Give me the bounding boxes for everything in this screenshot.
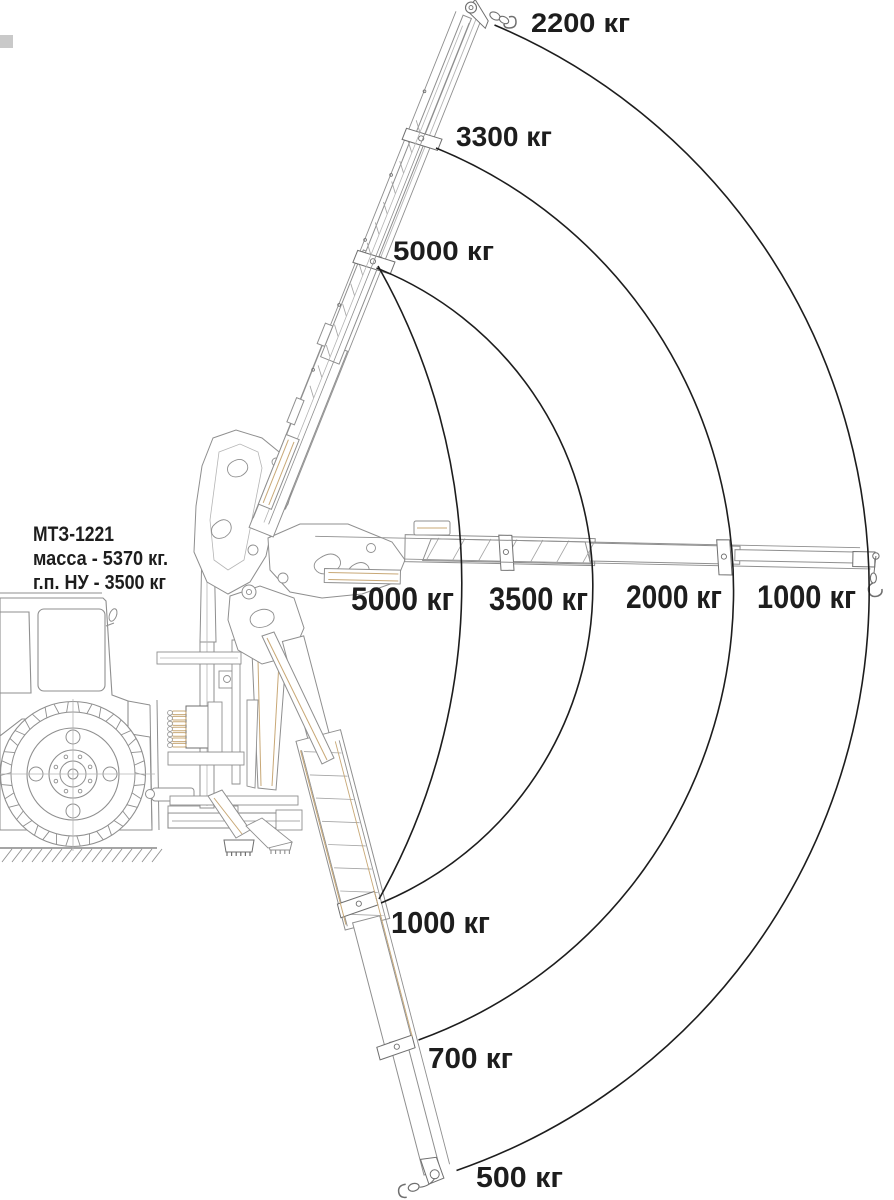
svg-text:5000 кг: 5000 кг — [393, 236, 494, 266]
svg-text:2000 кг: 2000 кг — [626, 579, 722, 615]
svg-text:г.п. НУ - 3500 кг: г.п. НУ - 3500 кг — [33, 572, 166, 594]
svg-text:700 кг: 700 кг — [428, 1043, 513, 1075]
svg-text:3300 кг: 3300 кг — [456, 121, 552, 152]
svg-text:5000 кг: 5000 кг — [351, 581, 454, 617]
svg-text:1000 кг: 1000 кг — [757, 579, 856, 615]
svg-text:1000 кг: 1000 кг — [391, 905, 490, 940]
svg-text:МТЗ-1221: МТЗ-1221 — [33, 523, 114, 546]
svg-text:500 кг: 500 кг — [476, 1162, 563, 1194]
svg-text:масса - 5370 кг.: масса - 5370 кг. — [33, 548, 168, 570]
svg-text:2200 кг: 2200 кг — [531, 8, 630, 38]
svg-text:3500 кг: 3500 кг — [489, 581, 588, 617]
